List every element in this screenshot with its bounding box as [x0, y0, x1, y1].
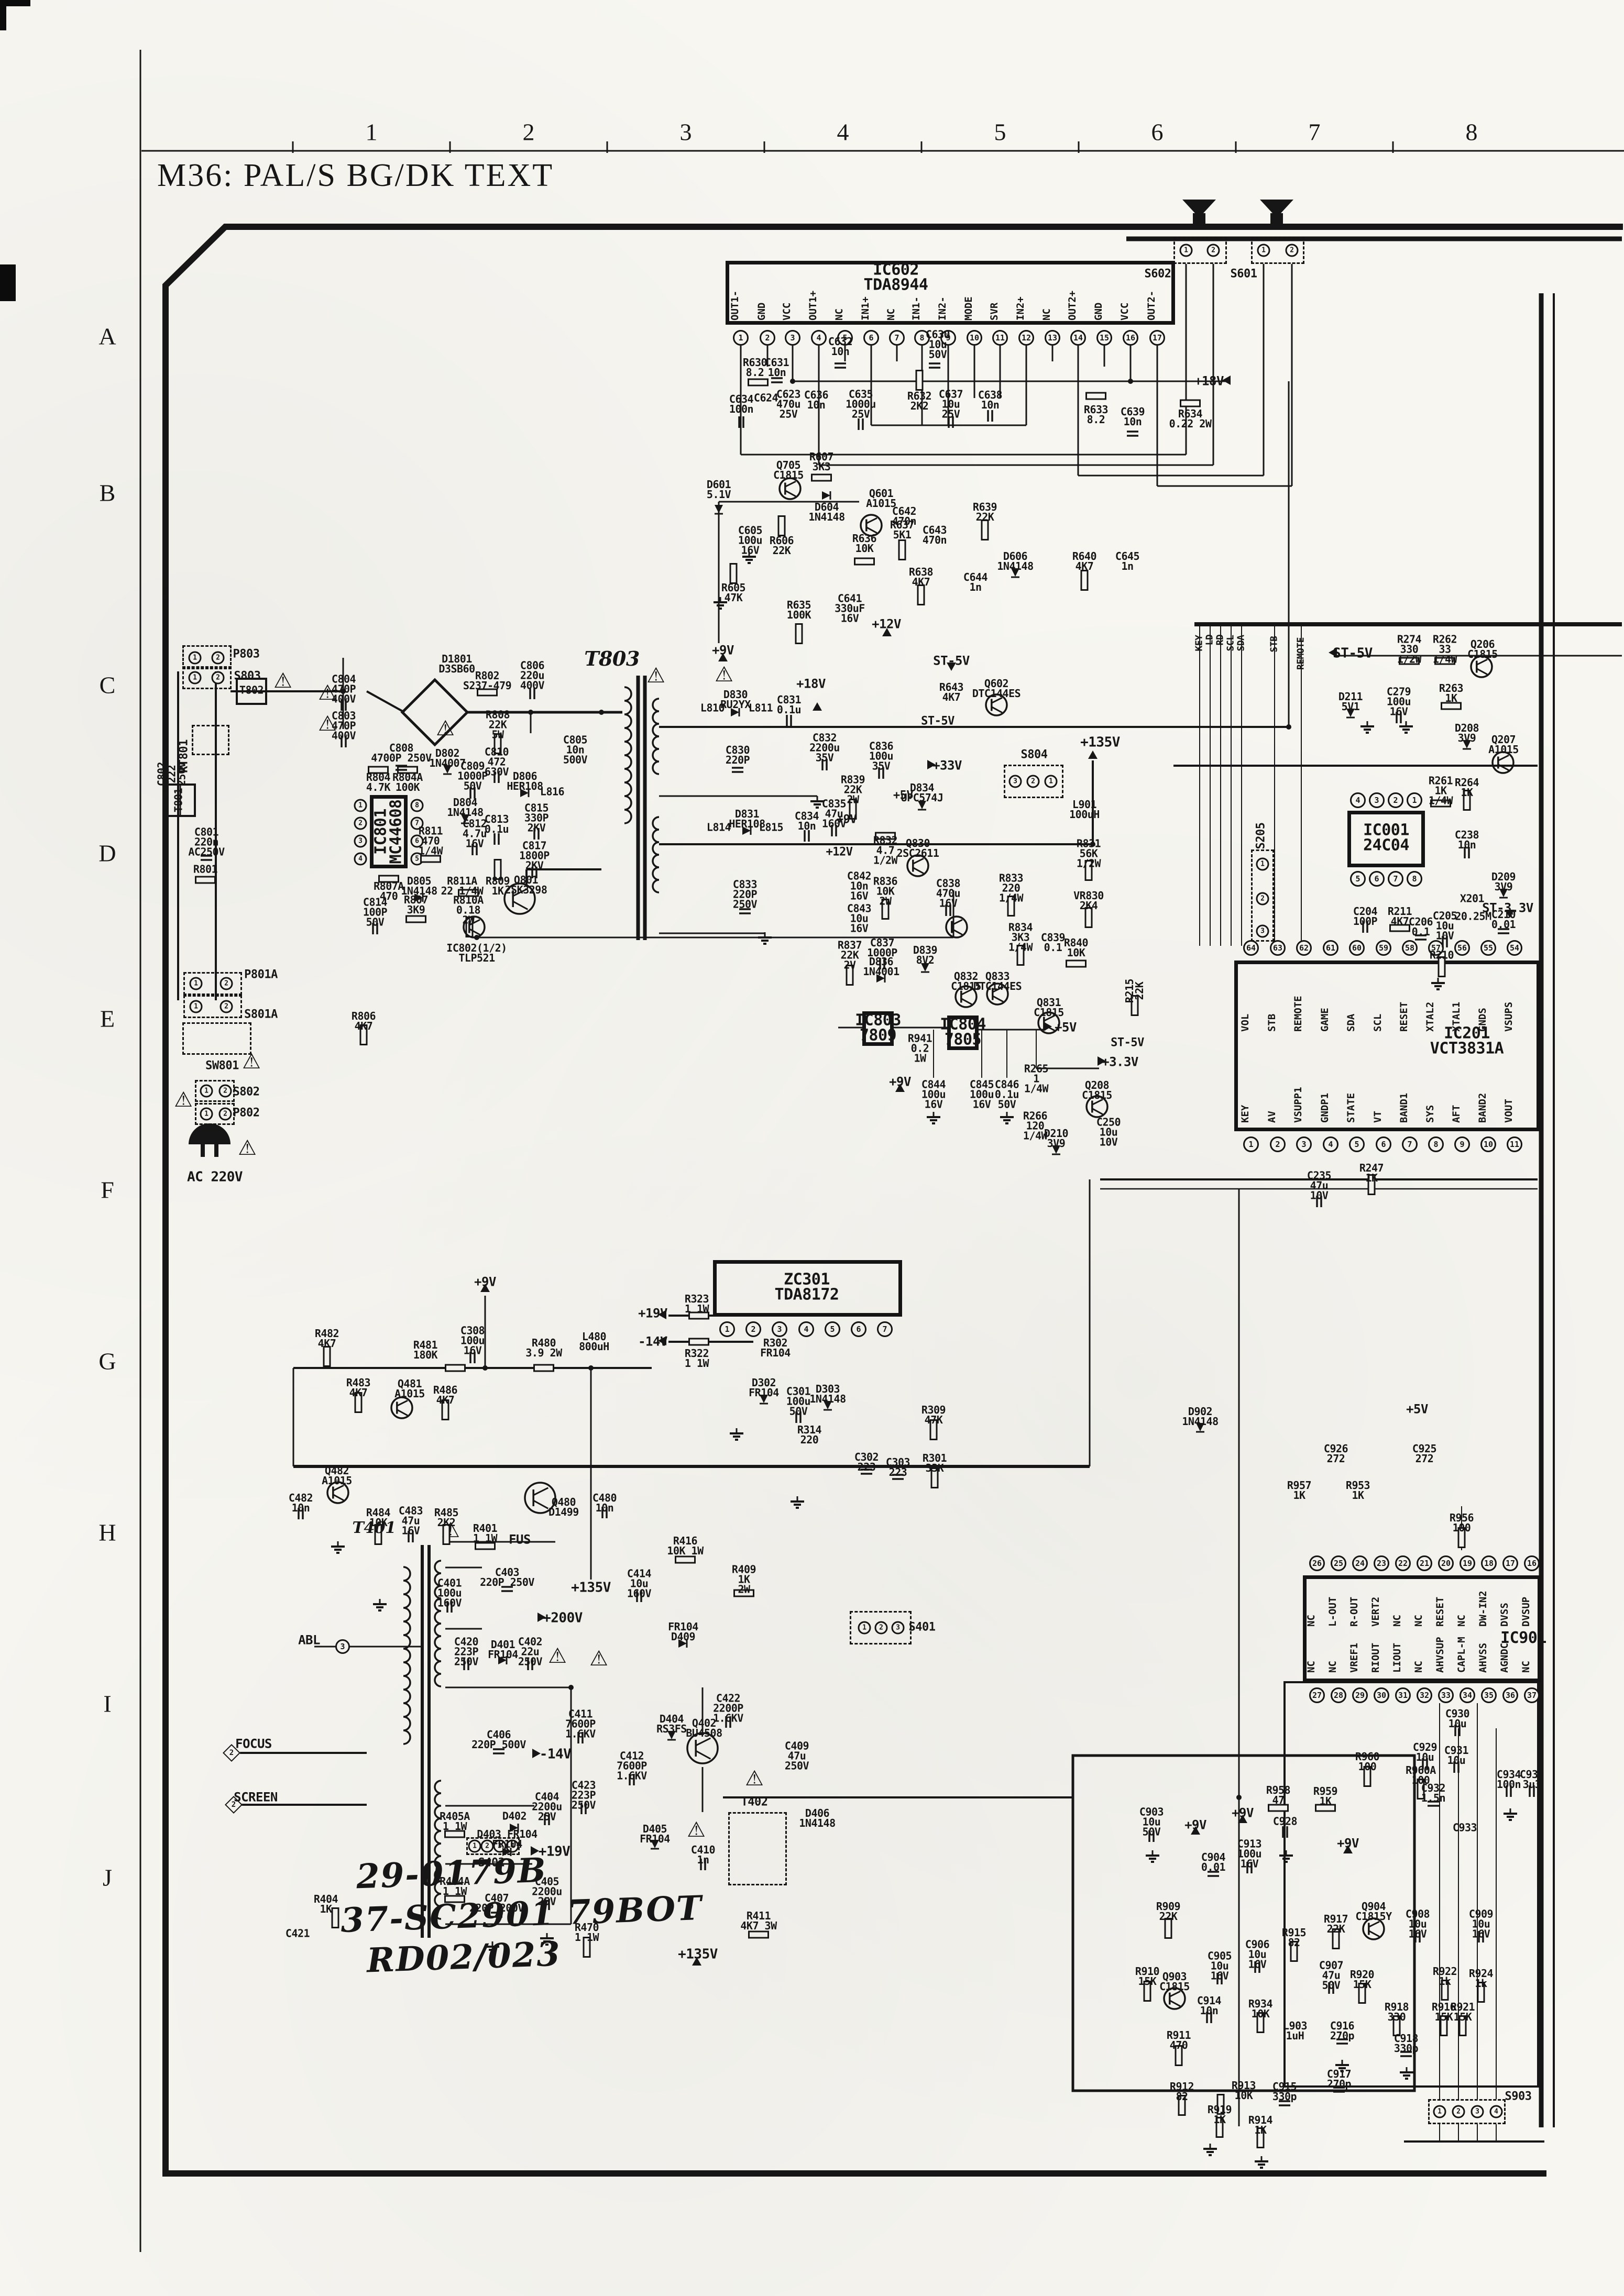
- warning-icon: ⚠: [242, 1051, 261, 1072]
- ground-icon: [926, 1112, 941, 1128]
- junction-dot: [790, 379, 795, 384]
- warning-icon: ⚠: [548, 1646, 567, 1666]
- junction-dot: [482, 1365, 488, 1371]
- pin-circle: 4: [798, 1321, 814, 1337]
- grid-row-label: E: [100, 1005, 115, 1033]
- pin-circle: 1: [190, 1000, 203, 1013]
- connector-label: S903: [1505, 2092, 1532, 2103]
- pin-name: VERT2: [1370, 1583, 1381, 1627]
- pin-name: IN1+: [860, 265, 871, 321]
- grid-col-label: 7: [1309, 118, 1321, 146]
- schematic-title: M36: PAL/S BG/DK TEXT: [157, 157, 554, 194]
- component-label: D830 RU2YX: [720, 690, 751, 710]
- pin-name: SCL: [1372, 970, 1384, 1032]
- pin-circle: 3: [354, 835, 367, 848]
- component-label: L811: [749, 703, 773, 713]
- component-label: C918 330p: [1394, 2034, 1418, 2054]
- pin-circle: 6: [1369, 871, 1385, 887]
- pin-circle: 1: [719, 1321, 735, 1337]
- pin-circle: 3: [1296, 1136, 1312, 1152]
- component-label: R633 8.2: [1084, 405, 1108, 425]
- pin-circle: 7: [1388, 871, 1403, 887]
- component-label: C844 100u 16V: [921, 1080, 946, 1110]
- component-label: SCL: [1226, 635, 1235, 651]
- pin-name: AV: [1266, 1061, 1278, 1123]
- component-label: C932 1.5n: [1421, 1783, 1445, 1803]
- connector-label: P801A: [244, 970, 278, 981]
- component-label: C409 47u 250V: [785, 1741, 809, 1771]
- pin-circle: 1: [1407, 792, 1422, 808]
- warning-icon: ⚠: [238, 1138, 257, 1158]
- component-label: R640 4K7: [1072, 551, 1096, 571]
- component-label: SCREEN: [234, 1792, 278, 1804]
- pin-name: KEY: [1239, 1061, 1251, 1123]
- pin-circle: 1: [189, 652, 202, 665]
- pin-circle: 2: [760, 330, 775, 346]
- pin-name: IN1-: [910, 265, 922, 321]
- component-label: R404 1K: [314, 1894, 338, 1914]
- capacitor-glyph: [737, 416, 745, 431]
- pin-name: NC: [1305, 1629, 1317, 1673]
- component-label: C210 0.01: [1491, 910, 1516, 930]
- pin-circle: 20: [1438, 1555, 1454, 1571]
- ground-icon: [1359, 721, 1375, 737]
- pin-circle: 10: [1480, 1136, 1496, 1152]
- pin-name: VSUPP1: [1292, 1061, 1304, 1123]
- pin-name: NC: [1413, 1629, 1424, 1673]
- pin-name: NC: [1520, 1629, 1532, 1673]
- circle-ref-icon: 3: [335, 1639, 350, 1654]
- pin-name: OUT2+: [1067, 265, 1078, 321]
- grid-row-label: I: [103, 1690, 111, 1718]
- component-label: C810 472 630V: [485, 747, 509, 777]
- pin-circle: 5: [1349, 1136, 1365, 1152]
- component-label: C839 0.1: [1041, 933, 1065, 953]
- pin-name: NC: [833, 265, 845, 321]
- component-label: R917 22K: [1324, 1914, 1348, 1934]
- pin-name: GND: [1093, 265, 1104, 321]
- component-label: R918 330: [1385, 2002, 1409, 2022]
- pin-name: AFT: [1451, 1061, 1462, 1123]
- component-label: C205 10u 10V: [1433, 911, 1457, 941]
- pin-circle: 21: [1417, 1555, 1432, 1571]
- warning-icon: ⚠: [745, 1768, 764, 1789]
- pin-circle: 4: [354, 853, 367, 866]
- supply-arrow-icon: [1088, 750, 1098, 762]
- component-label: C635 1000u 25V: [846, 390, 876, 420]
- component-label: D402: [502, 1812, 526, 1822]
- pin-circle: 15: [1096, 330, 1112, 346]
- resistor-glyph: [778, 515, 786, 536]
- resistor-glyph: [811, 474, 832, 482]
- pin-circle: 1: [1256, 858, 1269, 871]
- pin-circle: 6: [1376, 1136, 1391, 1152]
- pin-circle: 60: [1349, 940, 1365, 956]
- component-label: R934 10K: [1248, 1999, 1272, 2019]
- pin-name: LIOUT: [1391, 1629, 1403, 1673]
- pin-name: GND: [756, 265, 767, 321]
- ic-label: IC801 MC44608: [374, 800, 404, 864]
- speaker-icon: [1259, 199, 1294, 228]
- component-label: R811A 22 1/4W: [441, 876, 484, 896]
- connector-label: S401: [909, 1622, 936, 1633]
- ground-icon: [1502, 1808, 1518, 1824]
- component-label: +9V: [712, 645, 734, 657]
- pin-circle: 1: [200, 1085, 213, 1098]
- grid-col-label: 1: [366, 118, 378, 146]
- ground-icon: [1430, 978, 1446, 994]
- component-label: C817 1800P 2KV: [519, 841, 550, 871]
- component-label: C643 470n: [923, 525, 947, 545]
- component-label: C632 10n: [828, 337, 852, 357]
- pin-name: RESET: [1434, 1583, 1446, 1627]
- component-label: R264 1K: [1455, 778, 1479, 798]
- pin-name: XTAL1: [1451, 970, 1462, 1032]
- component-label: C403 220P 250V: [480, 1568, 534, 1587]
- component-label: +9V: [474, 1276, 496, 1288]
- pin-circle: 61: [1323, 940, 1338, 956]
- component-label: C206 0.1: [1409, 917, 1433, 937]
- component-label: C402 22u 250V: [518, 1637, 542, 1667]
- component-label: R405A 1 1W: [440, 1812, 470, 1831]
- connector-label: S804: [1021, 750, 1048, 761]
- pin-name: REMOTE: [1292, 970, 1304, 1032]
- component-label: R920 15K: [1350, 1970, 1374, 1990]
- component-label: C907 47u 50V: [1319, 1961, 1343, 1991]
- pin-circle: 33: [1438, 1687, 1454, 1703]
- pin-circle: 2: [219, 1108, 232, 1121]
- resistor-glyph: [730, 563, 738, 584]
- component-label: R840 10K: [1064, 938, 1088, 958]
- component-label: C410 1n: [691, 1845, 715, 1865]
- pin-name: GNDS: [1477, 970, 1488, 1032]
- component-label: Q801 2SK3298: [505, 875, 547, 895]
- component-label: C404 2200u 25V: [532, 1792, 562, 1822]
- connector-label: S602: [1145, 269, 1171, 280]
- pin-circle: 4: [1323, 1136, 1338, 1152]
- pin-circle: 2: [1270, 1136, 1286, 1152]
- component-label: D210 3V9: [1044, 1129, 1068, 1149]
- junction-dot: [568, 1685, 574, 1690]
- ic-label: IC804 7805: [940, 1018, 986, 1047]
- component-label: L816: [540, 787, 564, 797]
- component-label: D601 5.1V: [707, 480, 731, 500]
- component-label: ST-5V: [921, 716, 954, 727]
- component-label: STB: [1269, 636, 1278, 652]
- pin-circle: 35: [1481, 1687, 1497, 1703]
- component-label: C630 10u 50V: [926, 330, 950, 360]
- component-label: C928: [1273, 1817, 1297, 1827]
- pin-circle: 2: [354, 817, 367, 830]
- pin-circle: 16: [1524, 1555, 1540, 1571]
- resistor-glyph: [1066, 960, 1087, 968]
- component-label: C641 330uF 16V: [835, 594, 865, 624]
- component-label: C808 4700P 250V: [371, 743, 431, 763]
- component-label: R486 4K7: [433, 1385, 457, 1405]
- pin-name: IN2+: [1015, 265, 1026, 321]
- component-label: C913 100u 16V: [1237, 1839, 1261, 1869]
- component-label: FOCUS: [235, 1738, 272, 1750]
- pin-name: VOUT: [1503, 1061, 1515, 1123]
- component-label: R801: [193, 865, 217, 875]
- component-label: C830 220P: [726, 745, 750, 765]
- connector: [182, 1022, 251, 1055]
- component-label: C480 10n: [592, 1493, 617, 1513]
- component-label: C832 2200u 35V: [809, 733, 840, 763]
- ground-icon: [757, 932, 773, 948]
- component-label: C842 10n 16V: [847, 871, 871, 901]
- component-label: ST-5V: [933, 655, 970, 667]
- component-label: Q833 DTC144ES: [973, 972, 1022, 991]
- pin-name: VCC: [781, 265, 793, 321]
- component-label: +135V: [571, 1582, 611, 1595]
- component-label: D902 1N4148: [1182, 1407, 1218, 1427]
- resistor-glyph: [898, 539, 906, 560]
- pin-name: GAME: [1319, 970, 1331, 1032]
- component-label: R915 82: [1282, 1928, 1306, 1948]
- component-label: R636 10K: [852, 534, 876, 554]
- junction-dot: [1236, 1795, 1242, 1800]
- component-label: R301 33K: [923, 1453, 947, 1473]
- component-label: D211 5V1: [1338, 692, 1363, 712]
- component-label: C623 470u 25V: [776, 390, 800, 420]
- component-label: C906 10u 16V: [1245, 1940, 1269, 1970]
- pin-circle: 32: [1417, 1687, 1432, 1703]
- resistor-glyph: [1085, 392, 1106, 400]
- component-label: R480 3.9 2W: [525, 1338, 562, 1358]
- component-label: R959 1K: [1313, 1786, 1337, 1806]
- component-label: R911 470: [1167, 2030, 1191, 2050]
- pin-circle: 1: [733, 330, 749, 346]
- capacitor-glyph: [834, 361, 847, 372]
- connector-label: P802: [233, 1108, 260, 1119]
- component-label: R416 10K 1W: [667, 1536, 703, 1556]
- component-label: +3.3V: [1102, 1056, 1138, 1068]
- component-label: C812 4.7u 16V: [463, 819, 487, 849]
- component-label: R401 1 1W: [473, 1524, 497, 1543]
- component-label: FR104 D409: [668, 1622, 698, 1642]
- ground-icon: [372, 1599, 388, 1615]
- pin-circle: 59: [1376, 940, 1391, 956]
- component-label: C605 100u 16V: [738, 526, 762, 556]
- component-label: +12V: [872, 619, 901, 631]
- pin-name: NC: [1041, 265, 1052, 321]
- component-label: +5V: [1055, 1022, 1077, 1034]
- pin-name: CAPL-M: [1456, 1629, 1467, 1673]
- component-label: R409 1K 2W: [732, 1565, 756, 1595]
- pin-circle: 7: [889, 330, 905, 346]
- pin-circle: 3: [892, 1621, 905, 1635]
- component-label: C814 100P 50V: [363, 898, 387, 928]
- connector: [192, 725, 229, 755]
- component-label: C815 330P 2KV: [524, 803, 548, 833]
- supply-arrow-icon: [1044, 1022, 1053, 1033]
- pin-circle: 2: [212, 671, 225, 685]
- pin-circle: 34: [1460, 1687, 1475, 1703]
- ic-label: IC803 7809: [855, 1013, 901, 1043]
- component-label: Q830 2SC2611: [897, 838, 939, 858]
- pin-circle: 2: [1256, 892, 1269, 906]
- component-label: R956 100: [1450, 1513, 1474, 1533]
- component-label: C411 7600P 1.6KV: [565, 1709, 596, 1739]
- pin-name: SVR: [989, 265, 1000, 321]
- component-label: C414 10u 160V: [627, 1569, 651, 1599]
- pin-name: AHVSS: [1477, 1629, 1489, 1673]
- component-label: R481 180K: [413, 1340, 437, 1360]
- pin-circle: 16: [1123, 330, 1138, 346]
- component-label: C421: [286, 1929, 310, 1939]
- component-label: C931 10u: [1444, 1746, 1468, 1765]
- pin-circle: 62: [1296, 940, 1312, 956]
- component-label: R957 1K: [1287, 1481, 1311, 1500]
- warning-icon: ⚠: [687, 1819, 706, 1840]
- component-label: C917 270p: [1327, 2069, 1351, 2089]
- pin-name: AGNDC: [1499, 1629, 1510, 1673]
- component-label: R919 1K: [1208, 2105, 1232, 2125]
- pin-name: NC: [1413, 1583, 1424, 1627]
- resistor-glyph: [405, 915, 426, 923]
- pin-circle: 2: [212, 652, 225, 665]
- ic-label: ZC301 TDA8172: [775, 1273, 839, 1302]
- component-label: IC802(1/2) TLP521: [446, 943, 507, 963]
- component-label: D839 8V2: [913, 945, 937, 965]
- ground-icon: [789, 1496, 805, 1512]
- component-label: C279 100u 16V: [1387, 687, 1411, 717]
- component-label: C803 470P 400V: [332, 711, 356, 741]
- component-label: R807 3K9: [404, 895, 428, 915]
- component-label: LD: [1205, 635, 1214, 646]
- component-label: C308 100u 16V: [460, 1326, 485, 1356]
- component-label: D209 3V9: [1491, 872, 1516, 892]
- component-label: R606 22K: [770, 536, 794, 556]
- pin-circle: 3: [1369, 792, 1385, 808]
- component-label: R605 47K: [721, 583, 745, 603]
- component-label: R910 15K: [1135, 1967, 1159, 1986]
- ac-plug-icon: [186, 1123, 233, 1160]
- pin-circle: 3: [772, 1321, 787, 1337]
- component-label: +135V: [678, 1948, 718, 1961]
- component-label: C624: [754, 393, 778, 403]
- pin-circle: 2: [1207, 244, 1220, 257]
- pin-circle: 28: [1331, 1687, 1346, 1703]
- junction-dot: [1286, 724, 1291, 730]
- resistor-glyph: [533, 1364, 554, 1372]
- component-label: Q208 C1815: [1082, 1080, 1112, 1100]
- handwritten-note: 29-0179B: [356, 1851, 547, 1897]
- grid-col-label: 2: [523, 118, 535, 146]
- component-label: R309 47K: [921, 1405, 946, 1425]
- ground-icon: [1398, 721, 1414, 737]
- component-label: C401 100u 160V: [437, 1579, 462, 1608]
- pin-name: DVSUP: [1520, 1583, 1532, 1627]
- component-label: Q705 C1815: [773, 460, 804, 480]
- component-label: +33V: [932, 760, 962, 772]
- ic-block: [726, 261, 1175, 325]
- component-label: Q207 A1015: [1488, 735, 1519, 755]
- component-label: C423 223P 250V: [572, 1781, 596, 1811]
- pin-circle: 8: [411, 799, 424, 812]
- pin-name: VREF1: [1348, 1629, 1360, 1673]
- component-label: C802 222 250V: [157, 762, 187, 786]
- component-label: R483 4K7: [346, 1378, 370, 1398]
- component-label: D404 RS3FS: [656, 1714, 687, 1734]
- resistor-glyph: [854, 558, 875, 566]
- pin-circle: 5: [1350, 871, 1366, 887]
- component-label: C638 10n: [978, 390, 1002, 410]
- scan-corner-mark: [0, 0, 6, 30]
- pin-name: NC: [1327, 1629, 1338, 1673]
- component-label: C838 470u 16V: [936, 879, 960, 909]
- pin-circle: 2: [1452, 2105, 1465, 2118]
- component-label: D606 1N4148: [997, 551, 1033, 571]
- pin-circle: 2: [1388, 792, 1403, 808]
- component-label: C639 10n: [1121, 407, 1145, 427]
- component-label: R953 1K: [1346, 1481, 1370, 1500]
- component-label: L814: [707, 823, 731, 833]
- grid-row-label: A: [98, 323, 116, 350]
- pin-circle: 2: [219, 1085, 232, 1098]
- warning-icon: ⚠: [646, 665, 665, 686]
- component-label: SDA: [1236, 635, 1245, 651]
- pin-circle: 1: [1045, 775, 1058, 788]
- component-label: C805 10n 500V: [563, 735, 587, 765]
- pin-circle: 18: [1481, 1555, 1497, 1571]
- capacitor-glyph: [1126, 429, 1139, 440]
- pin-circle: 31: [1395, 1687, 1411, 1703]
- component-label: R811 470 1/4W: [419, 826, 443, 856]
- component-label: R484 10K: [366, 1508, 390, 1528]
- component-label: R265 1 1/4W: [1024, 1064, 1048, 1094]
- component-label: Q206 C1815: [1467, 639, 1498, 659]
- component-label: L903 1uH: [1283, 2021, 1307, 2041]
- component-label: +200V: [543, 1612, 583, 1625]
- component-label: D401 FR104: [488, 1640, 518, 1660]
- pin-circle: 8: [1407, 871, 1422, 887]
- component-label: C929 10u: [1413, 1742, 1437, 1762]
- component-label: R643 4K7: [939, 682, 963, 702]
- capacitor-glyph: [928, 361, 941, 372]
- pin-circle: 1: [190, 977, 203, 990]
- component-label: R804A 100K: [392, 772, 423, 792]
- component-label: D302 FR104: [749, 1378, 779, 1398]
- junction-dot: [528, 710, 533, 715]
- pin-name: BAND1: [1398, 1061, 1410, 1123]
- component-label: C801 220n AC250V: [188, 827, 224, 857]
- component-label: D804 1N4148: [447, 798, 483, 818]
- junction-dot: [588, 1365, 594, 1371]
- component-label: VR830 2K4: [1073, 891, 1104, 911]
- speaker-icon: [1182, 199, 1216, 228]
- ic-label: IC201 VCT3831A: [1430, 1026, 1504, 1056]
- pin-circle: 30: [1374, 1687, 1389, 1703]
- component-label: C645 1n: [1115, 551, 1139, 571]
- component-label: R921 15K: [1451, 2002, 1475, 2022]
- pin-circle: 12: [1018, 330, 1034, 346]
- pin-circle: 2: [745, 1321, 761, 1337]
- grid-row-label: F: [101, 1176, 114, 1204]
- component-label: R832 4.7 1/2W: [873, 836, 897, 866]
- component-label: R837 22K 2V: [838, 941, 862, 970]
- component-label: +5V: [893, 791, 913, 802]
- component-label: ABL: [298, 1635, 320, 1647]
- diode-glyph: [714, 503, 724, 518]
- grid-row-label: B: [100, 479, 116, 507]
- component-label: C804 470P 400V: [332, 675, 356, 704]
- ground-icon: [1278, 1850, 1294, 1866]
- component-label: C642 470n: [892, 506, 916, 526]
- component-label: R261 1K 1/4W: [1429, 776, 1453, 806]
- connector-label: S803: [234, 671, 261, 682]
